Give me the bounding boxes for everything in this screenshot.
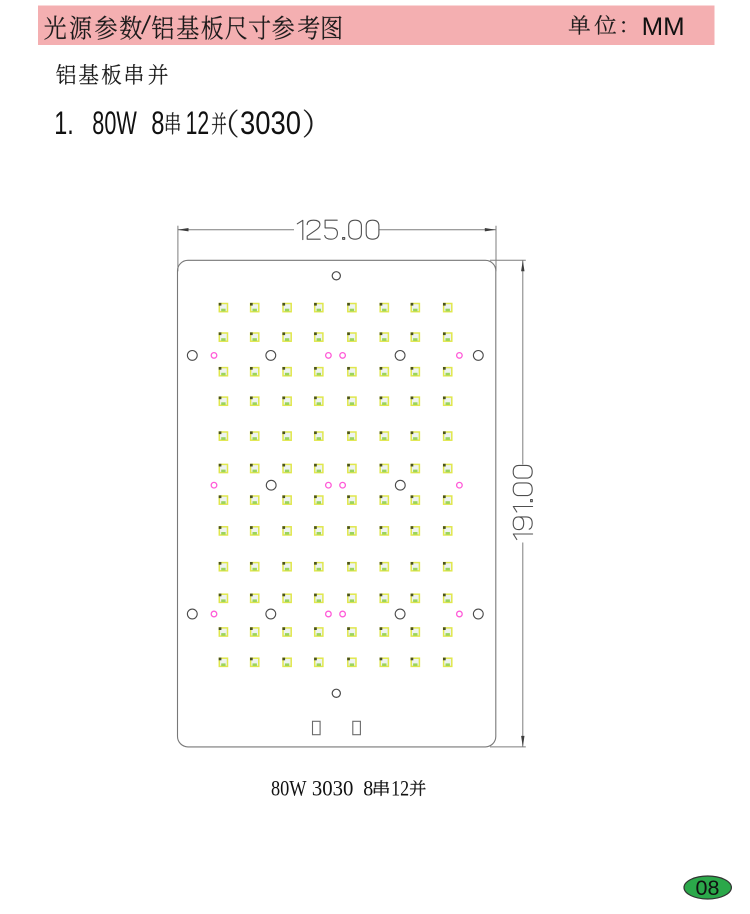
svg-text:08: 08: [696, 876, 720, 900]
svg-text:80W: 80W: [92, 105, 137, 141]
svg-text:12: 12: [186, 105, 210, 141]
svg-text:8: 8: [363, 776, 373, 801]
svg-text:1.: 1.: [54, 105, 73, 141]
svg-text:12: 12: [391, 776, 409, 801]
svg-text:3030: 3030: [240, 105, 301, 141]
svg-text:8: 8: [151, 105, 164, 141]
svg-text:80W: 80W: [271, 776, 307, 801]
svg-text:3030: 3030: [312, 776, 354, 801]
svg-text:MM: MM: [642, 13, 685, 41]
